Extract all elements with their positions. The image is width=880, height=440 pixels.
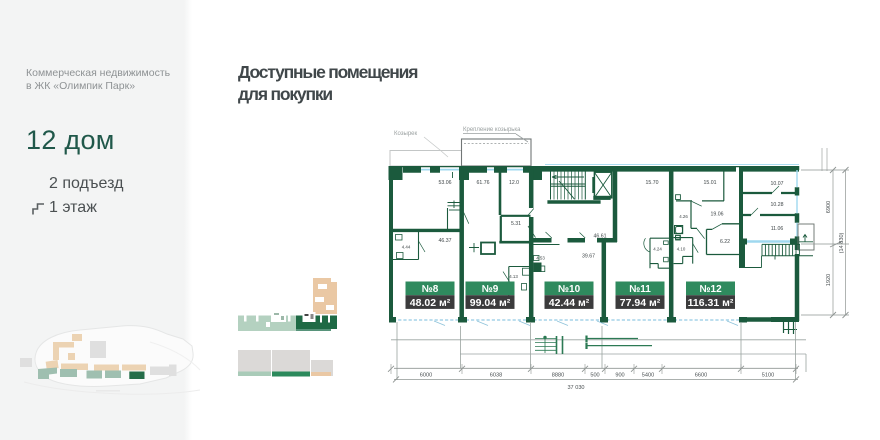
svg-text:99.04 м²: 99.04 м² [470, 297, 511, 309]
svg-text:15.70: 15.70 [646, 180, 659, 186]
svg-text:46.61: 46.61 [594, 234, 607, 240]
svg-text:42.44 м²: 42.44 м² [549, 297, 590, 309]
svg-text:4.24: 4.24 [653, 247, 662, 252]
svg-text:37 030: 37 030 [567, 385, 584, 391]
svg-text:5400: 5400 [642, 373, 654, 379]
svg-text:4.26: 4.26 [679, 214, 688, 219]
svg-text:4.10: 4.10 [677, 247, 686, 252]
svg-text:(14 830): (14 830) [839, 232, 845, 253]
svg-text:4.13: 4.13 [509, 274, 518, 279]
svg-text:19.06: 19.06 [711, 212, 724, 218]
svg-text:8880: 8880 [552, 373, 564, 379]
svg-text:Козырек: Козырек [394, 131, 418, 137]
svg-text:46.37: 46.37 [439, 238, 452, 244]
svg-text:5.31: 5.31 [511, 221, 521, 227]
svg-text:4.44: 4.44 [402, 245, 411, 250]
svg-text:№8: №8 [422, 284, 439, 295]
svg-text:№12: №12 [699, 284, 722, 295]
svg-text:10.28: 10.28 [771, 202, 784, 208]
svg-text:116.31 м²: 116.31 м² [688, 297, 734, 309]
svg-text:39.67: 39.67 [582, 254, 595, 260]
svg-text:6600: 6600 [695, 373, 707, 379]
svg-text:61.76: 61.76 [477, 180, 490, 186]
svg-text:77.94 м²: 77.94 м² [620, 297, 661, 309]
svg-text:48.02 м²: 48.02 м² [410, 297, 451, 309]
svg-text:10.07: 10.07 [771, 181, 784, 187]
svg-text:6000: 6000 [420, 373, 432, 379]
svg-text:Крепление козырька: Крепление козырька [463, 127, 521, 133]
svg-text:№9: №9 [482, 284, 499, 295]
svg-text:6900: 6900 [826, 201, 832, 213]
svg-text:12.0: 12.0 [509, 180, 519, 186]
svg-text:6.22: 6.22 [720, 239, 730, 245]
svg-text:4.53: 4.53 [536, 256, 545, 261]
svg-text:900: 900 [615, 373, 624, 379]
svg-text:1920: 1920 [826, 274, 832, 286]
svg-text:53.06: 53.06 [439, 180, 452, 186]
svg-text:№11: №11 [629, 284, 651, 295]
svg-text:15.01: 15.01 [704, 180, 717, 186]
svg-text:№10: №10 [558, 284, 581, 295]
svg-text:6038: 6038 [490, 373, 502, 379]
svg-text:5100: 5100 [762, 373, 774, 379]
svg-text:11.06: 11.06 [771, 226, 784, 232]
svg-text:500: 500 [590, 373, 599, 379]
